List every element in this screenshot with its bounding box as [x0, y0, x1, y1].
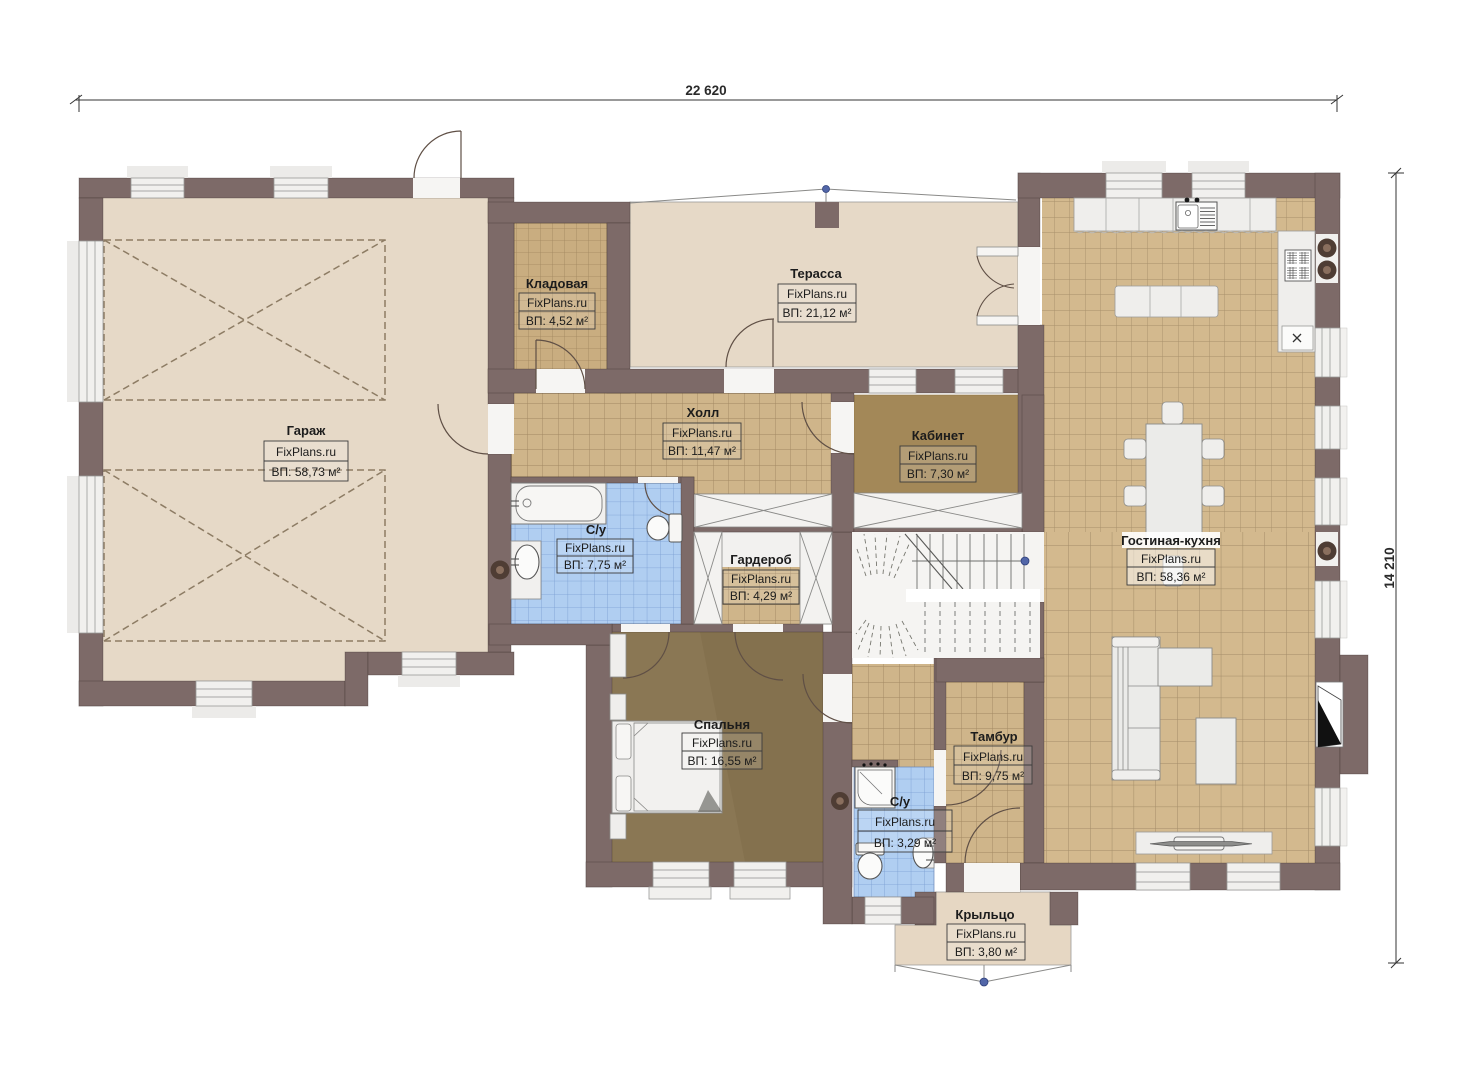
svg-text:22 620: 22 620	[685, 83, 726, 98]
svg-text:ВП: 21,12 м²: ВП: 21,12 м²	[783, 306, 852, 320]
svg-text:FixPlans.ru: FixPlans.ru	[963, 750, 1023, 764]
svg-text:FixPlans.ru: FixPlans.ru	[672, 426, 732, 440]
svg-text:ВП: 11,47 м²: ВП: 11,47 м²	[668, 444, 736, 458]
svg-text:Тамбур: Тамбур	[970, 729, 1017, 744]
svg-text:FixPlans.ru: FixPlans.ru	[908, 449, 968, 463]
svg-text:Кладовая: Кладовая	[526, 276, 588, 291]
svg-text:ВП: 7,30 м²: ВП: 7,30 м²	[907, 467, 969, 481]
svg-text:С/у: С/у	[890, 794, 911, 809]
svg-text:Гардероб: Гардероб	[730, 552, 791, 567]
svg-text:FixPlans.ru: FixPlans.ru	[787, 287, 847, 301]
svg-text:Кабинет: Кабинет	[912, 428, 965, 443]
svg-text:FixPlans.ru: FixPlans.ru	[276, 445, 336, 459]
svg-text:ВП: 16,55 м²: ВП: 16,55 м²	[688, 754, 757, 768]
svg-text:Крыльцо: Крыльцо	[955, 907, 1014, 922]
svg-text:FixPlans.ru: FixPlans.ru	[1141, 552, 1201, 566]
svg-text:ВП: 4,29 м²: ВП: 4,29 м²	[730, 589, 792, 603]
svg-text:Спальня: Спальня	[694, 717, 750, 732]
svg-text:FixPlans.ru: FixPlans.ru	[731, 572, 791, 586]
svg-text:ВП: 58,73 м²: ВП: 58,73 м²	[272, 465, 341, 479]
svg-text:ВП: 4,52 м²: ВП: 4,52 м²	[526, 314, 588, 328]
svg-text:ВП: 7,75 м²: ВП: 7,75 м²	[564, 558, 626, 572]
svg-text:ВП: 9,75 м²: ВП: 9,75 м²	[962, 769, 1024, 783]
svg-text:FixPlans.ru: FixPlans.ru	[692, 736, 752, 750]
svg-text:ВП: 3,29 м²: ВП: 3,29 м²	[874, 836, 936, 850]
svg-text:Терасса: Терасса	[790, 266, 842, 281]
svg-text:FixPlans.ru: FixPlans.ru	[527, 296, 587, 310]
svg-text:Гостиная-кухня: Гостиная-кухня	[1121, 533, 1221, 548]
svg-text:FixPlans.ru: FixPlans.ru	[565, 541, 625, 555]
svg-text:FixPlans.ru: FixPlans.ru	[956, 927, 1016, 941]
svg-text:ВП: 58,36 м²: ВП: 58,36 м²	[1137, 570, 1206, 584]
svg-text:Холл: Холл	[687, 405, 720, 420]
svg-text:С/у: С/у	[586, 522, 607, 537]
svg-text:FixPlans.ru: FixPlans.ru	[875, 815, 935, 829]
svg-text:Гараж: Гараж	[287, 423, 327, 438]
svg-text:ВП: 3,80 м²: ВП: 3,80 м²	[955, 945, 1017, 959]
svg-text:14 210: 14 210	[1382, 547, 1397, 588]
